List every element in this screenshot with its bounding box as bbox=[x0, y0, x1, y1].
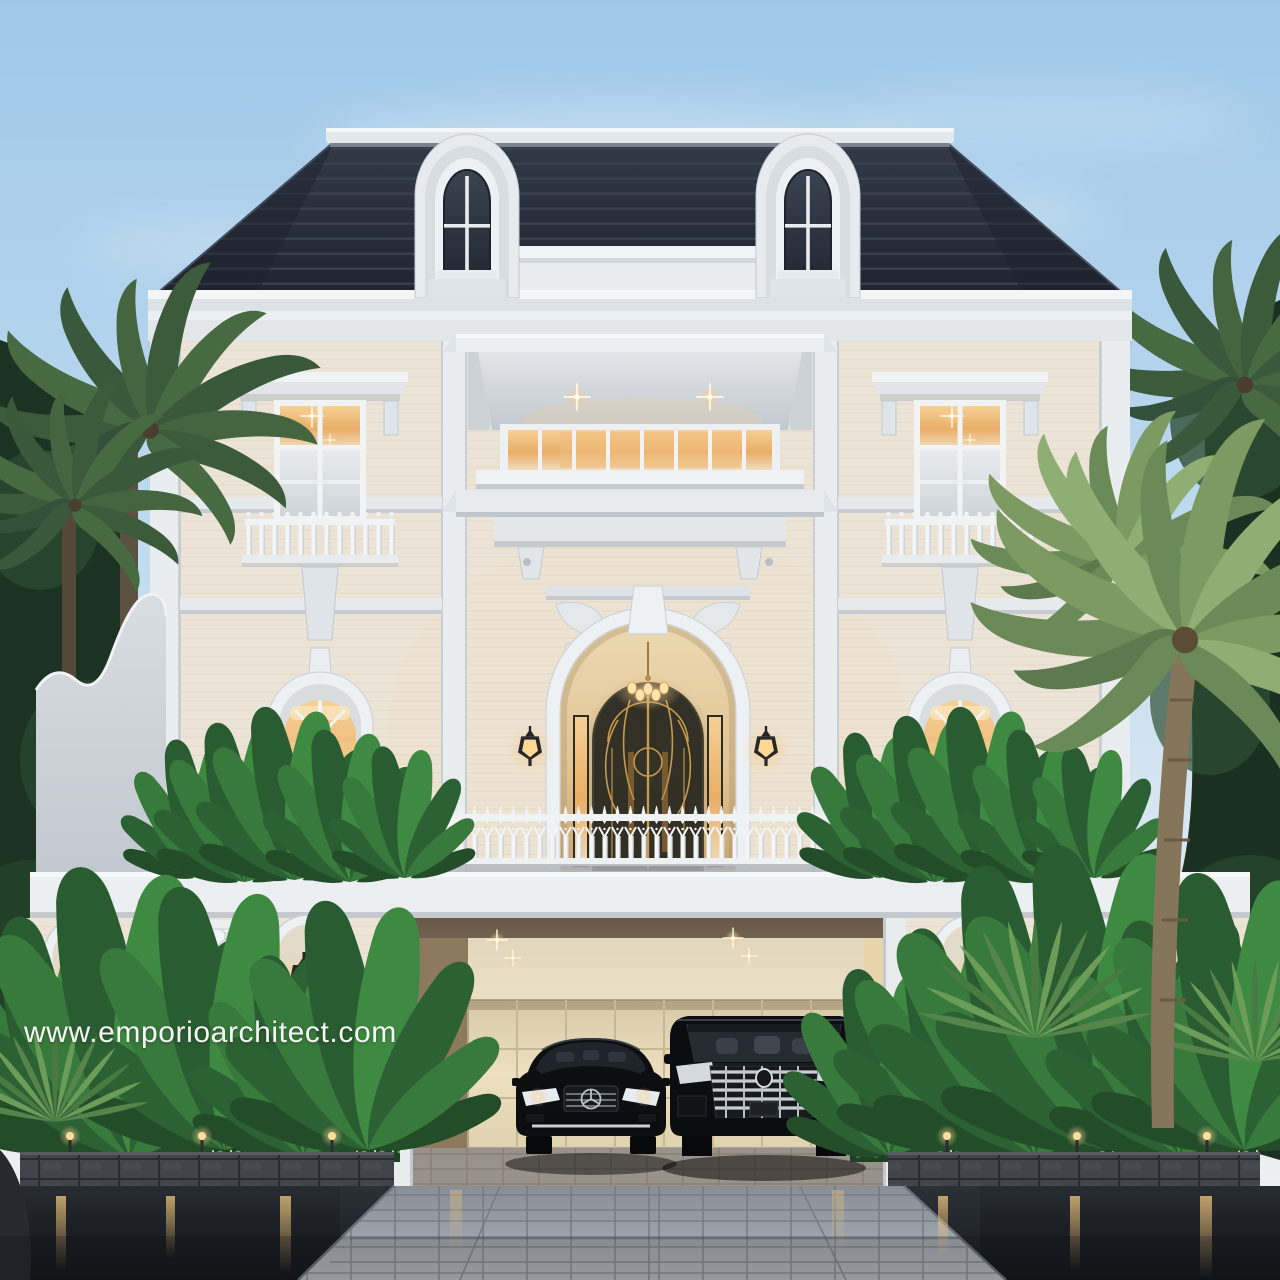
entry-sconce-right bbox=[742, 726, 790, 774]
third-floor-loggia bbox=[442, 334, 838, 579]
watermark: www.emporioarchitect.com bbox=[24, 1016, 397, 1050]
emblem bbox=[756, 1069, 772, 1087]
dormer-window-right bbox=[756, 134, 860, 298]
stone-curb-right bbox=[888, 1152, 1260, 1190]
license-plate bbox=[750, 1102, 778, 1116]
entry-sconce-left bbox=[506, 726, 554, 774]
stone-curb-left bbox=[20, 1152, 394, 1190]
dormer-window-left bbox=[415, 134, 519, 298]
architectural-render: www.emporioarchitect.com bbox=[0, 0, 1280, 1280]
scene-canvas bbox=[0, 0, 1280, 1280]
keystone bbox=[628, 586, 668, 634]
